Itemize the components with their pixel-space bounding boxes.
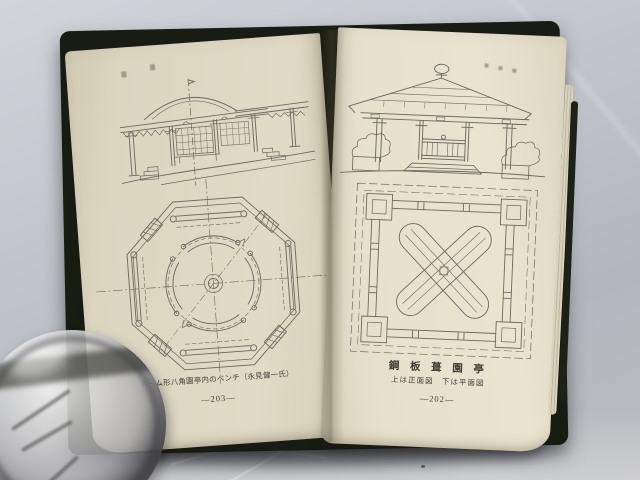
book-gutter-shadow <box>320 30 344 442</box>
left-page-header-mark <box>121 71 126 77</box>
right-page: 鋼 板 葺 園 亭 上は正面図 下は平面図 —202— <box>321 27 567 452</box>
elevation-strokes <box>115 70 316 191</box>
plan-strokes <box>350 183 537 359</box>
glass-paperweight <box>0 330 166 480</box>
square-plan-drawing <box>346 178 541 364</box>
dome-pavilion-elevation-drawing <box>113 68 319 192</box>
right-page-number: —202— <box>322 389 551 409</box>
photo-of-open-book: ドーム形八角園亭内のベンチ（永見健一氏） —203— <box>0 0 640 480</box>
elevation-strokes <box>340 60 550 181</box>
left-page-header-mark <box>150 64 155 70</box>
pavilion-front-elevation-drawing <box>340 58 550 184</box>
